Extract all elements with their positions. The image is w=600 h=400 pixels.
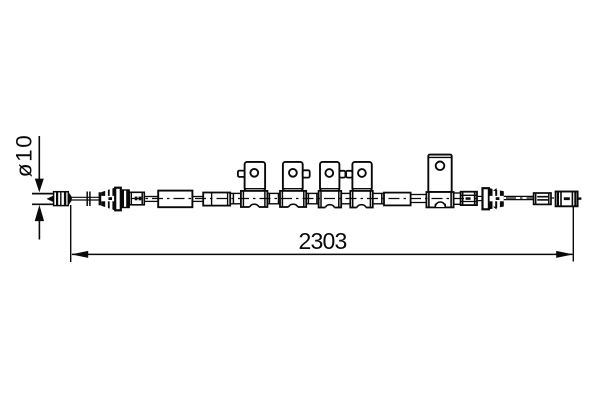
svg-text:ø10: ø10	[12, 134, 37, 178]
svg-text:2303: 2303	[299, 228, 347, 254]
